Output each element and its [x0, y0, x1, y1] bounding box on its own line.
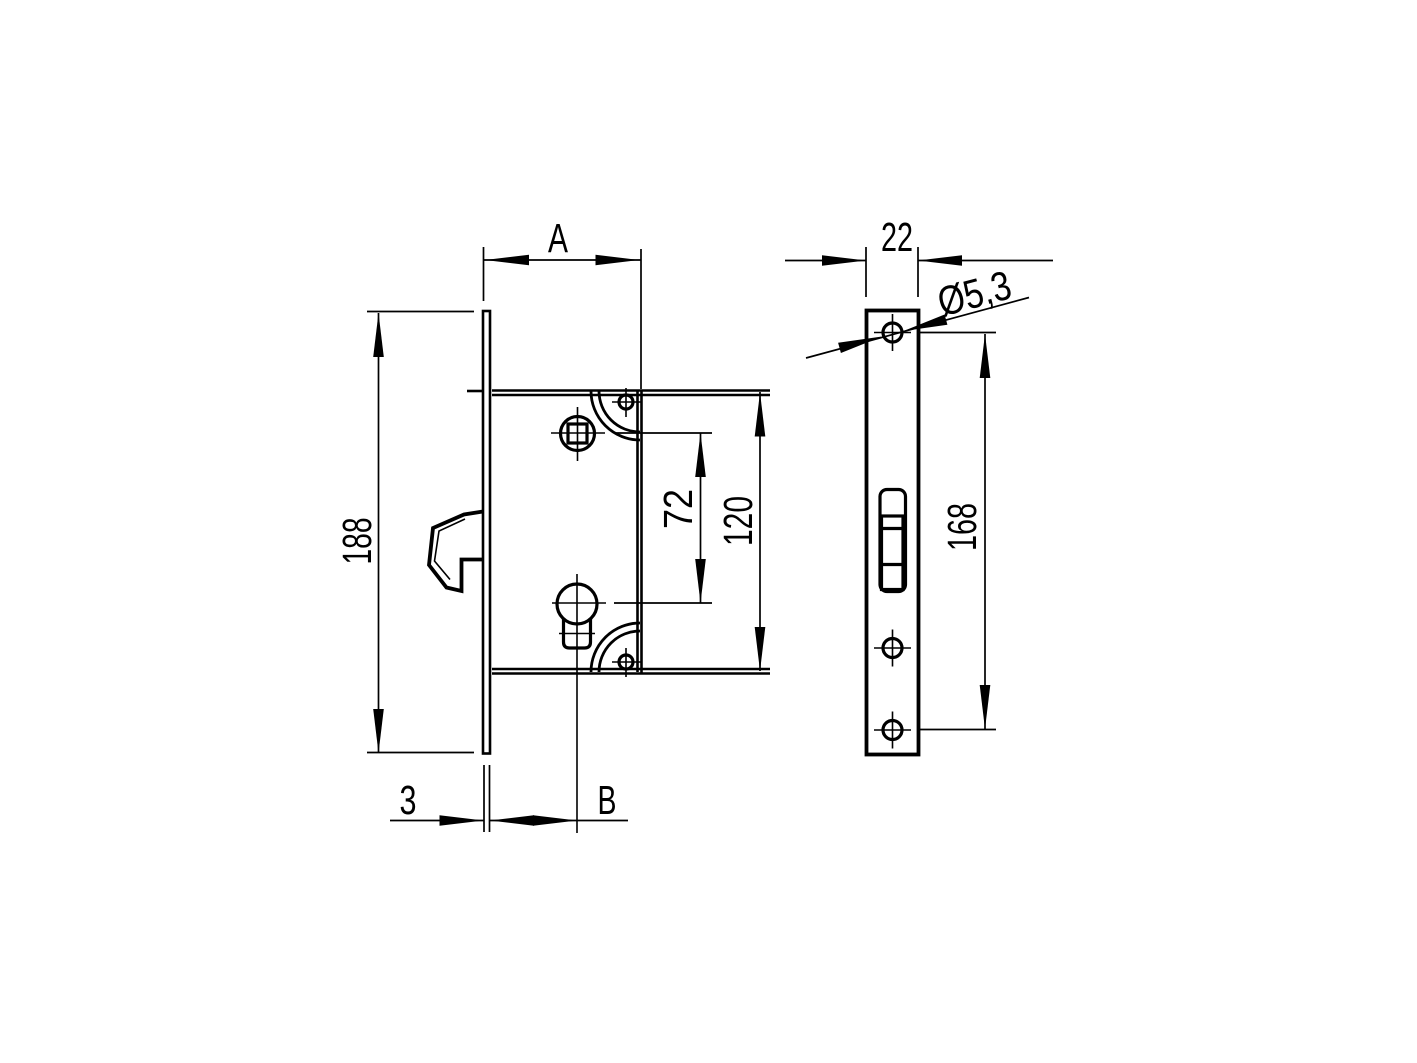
arrowhead — [695, 433, 706, 477]
dim-120: 120 — [715, 392, 765, 671]
extension-lines — [367, 312, 474, 753]
screw-crosshair — [874, 314, 911, 351]
screw-crosshair — [874, 712, 911, 749]
dim-label-diameter: Ø5,3 — [933, 262, 1016, 326]
faceplate-side — [867, 311, 919, 755]
dim-22: 22 — [785, 214, 1053, 297]
arrowhead — [918, 255, 962, 266]
arrowhead — [485, 255, 529, 266]
arrowhead — [904, 315, 948, 332]
screw-bottom — [874, 712, 911, 749]
dim-label-22: 22 — [881, 214, 913, 260]
arrowhead — [440, 815, 484, 826]
arrowhead — [373, 313, 384, 357]
dim-label-188: 188 — [334, 518, 380, 565]
technical-drawing: A 188 72 120 — [0, 0, 1417, 1063]
dim-168: 168 — [920, 333, 996, 730]
side-view: 22 Ø5,3 168 — [785, 214, 1053, 755]
screw-crosshair — [874, 630, 911, 667]
dim-label-a: A — [548, 215, 568, 261]
dim-label-72: 72 — [655, 489, 701, 529]
arrowhead — [838, 337, 882, 354]
arrowhead — [755, 627, 766, 671]
arrowhead — [596, 255, 640, 266]
dim-a: A — [484, 215, 642, 389]
extension-lines — [484, 247, 642, 389]
arrowhead — [980, 685, 991, 729]
dim-label-168: 168 — [939, 503, 985, 551]
front-view: A 188 72 120 — [334, 215, 770, 833]
extension-lines — [484, 765, 490, 832]
dim-label-120: 120 — [715, 496, 761, 546]
arrowhead — [822, 255, 866, 266]
arrowhead — [533, 815, 577, 826]
hook-bolt — [429, 512, 483, 592]
latch-cutout — [880, 490, 906, 592]
faceplate-edge — [483, 311, 490, 754]
dim-label-b: B — [598, 777, 617, 823]
dim-label-3: 3 — [400, 777, 417, 823]
faceplate-front — [483, 311, 490, 754]
screw-middle — [874, 630, 911, 667]
dim-188: 188 — [334, 312, 474, 754]
arrowhead — [980, 334, 991, 378]
dim-72: 72 — [614, 433, 712, 603]
arrowhead — [490, 815, 534, 826]
arrowhead — [373, 709, 384, 753]
arrowhead — [695, 559, 706, 603]
screw-top — [874, 314, 911, 351]
dim-3-and-b: 3 B — [390, 765, 628, 832]
faceplate-plate — [867, 311, 919, 755]
latch-bolt-lines — [882, 529, 904, 565]
arrowhead — [755, 393, 766, 437]
